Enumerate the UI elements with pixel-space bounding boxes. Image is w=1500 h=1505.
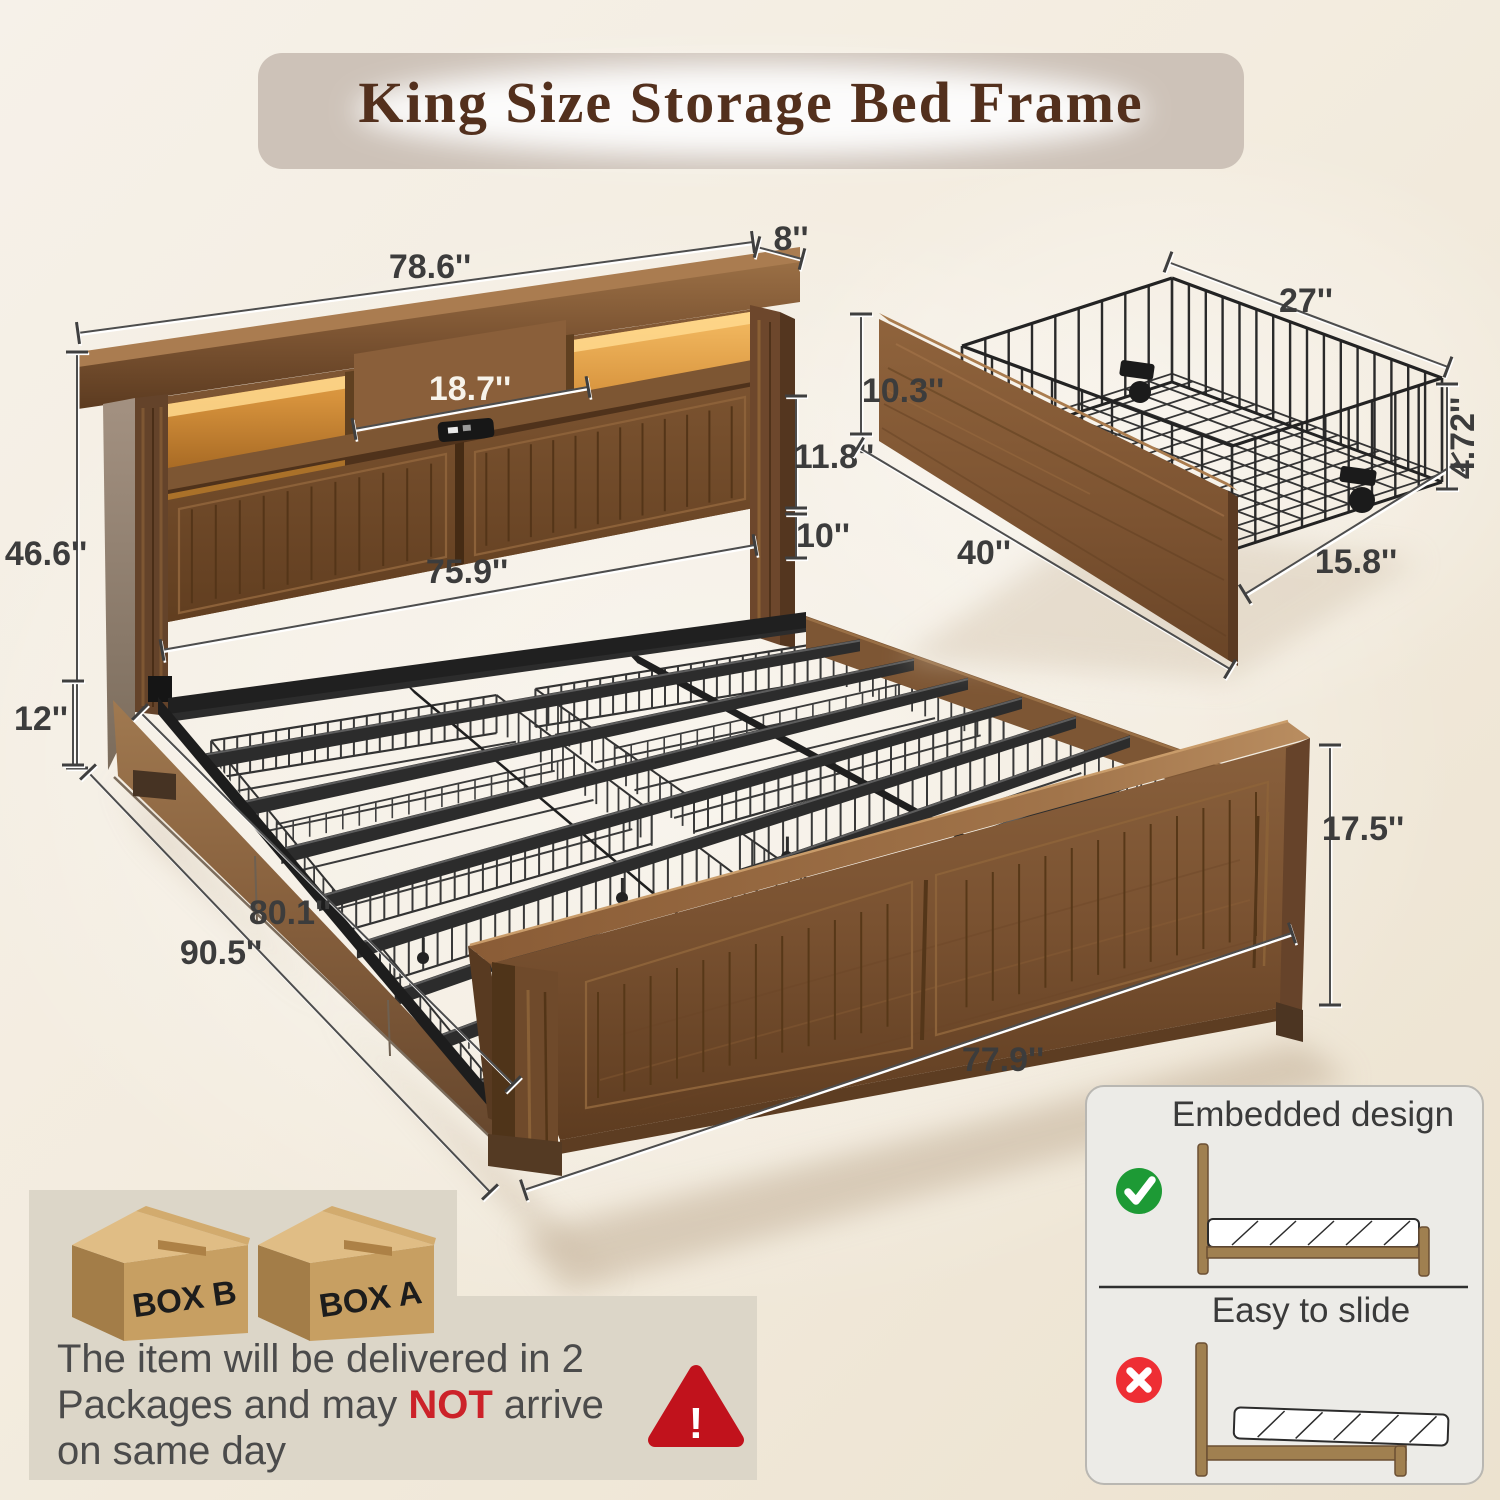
svg-text:77.9'': 77.9'' — [962, 1041, 1044, 1079]
svg-text:17.5'': 17.5'' — [1322, 810, 1404, 848]
svg-text:8'': 8'' — [773, 220, 808, 258]
svg-text:78.6'': 78.6'' — [389, 248, 471, 286]
svg-text:27'': 27'' — [1279, 282, 1333, 320]
svg-text:18.7'': 18.7'' — [429, 370, 511, 408]
svg-text:King Size Storage Bed Frame: King Size Storage Bed Frame — [358, 70, 1143, 135]
svg-text:Easy to slide: Easy to slide — [1212, 1291, 1410, 1330]
svg-text:75.9'': 75.9'' — [426, 553, 508, 591]
svg-text:90.5'': 90.5'' — [180, 934, 262, 972]
svg-text:Packages and may NOT arrive: Packages and may NOT arrive — [57, 1383, 604, 1427]
svg-text:12'': 12'' — [14, 700, 68, 738]
svg-text:Embedded design: Embedded design — [1172, 1095, 1454, 1134]
svg-text:10'': 10'' — [796, 517, 850, 555]
svg-text:80.1'': 80.1'' — [249, 894, 331, 932]
svg-text:!: ! — [689, 1399, 704, 1448]
svg-text:The item will be delivered in: The item will be delivered in 2 — [57, 1337, 584, 1381]
svg-text:15.8'': 15.8'' — [1315, 543, 1397, 581]
svg-text:10.3'': 10.3'' — [862, 372, 944, 410]
svg-text:40'': 40'' — [957, 534, 1011, 572]
svg-text:on same day: on same day — [57, 1429, 286, 1473]
svg-text:46.6'': 46.6'' — [5, 535, 87, 573]
svg-text:4.72'': 4.72'' — [1444, 397, 1482, 479]
